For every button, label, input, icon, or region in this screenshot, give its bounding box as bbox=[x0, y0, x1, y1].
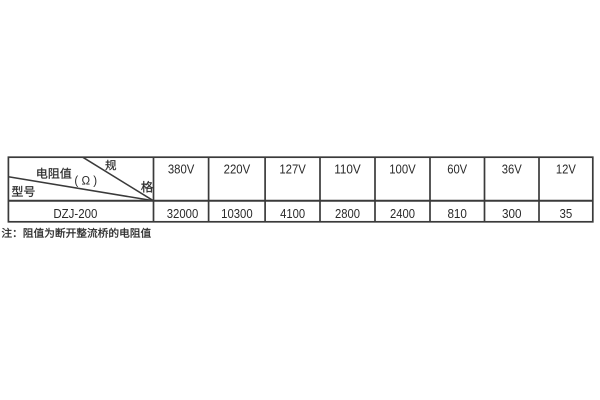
svg-text:810: 810 bbox=[447, 206, 467, 221]
svg-text:60V: 60V bbox=[447, 161, 467, 176]
svg-text:35: 35 bbox=[560, 206, 573, 221]
svg-text:300: 300 bbox=[502, 206, 522, 221]
svg-text:32000: 32000 bbox=[167, 206, 199, 221]
svg-text:10300: 10300 bbox=[221, 206, 253, 221]
svg-text:36V: 36V bbox=[502, 161, 522, 176]
svg-text:380V: 380V bbox=[168, 161, 195, 176]
svg-text:220V: 220V bbox=[224, 161, 251, 176]
svg-text:110V: 110V bbox=[334, 161, 361, 176]
svg-text:100V: 100V bbox=[389, 161, 416, 176]
svg-text:DZJ-200: DZJ-200 bbox=[53, 206, 97, 221]
svg-text:12V: 12V bbox=[556, 161, 576, 176]
svg-text:2800: 2800 bbox=[335, 206, 360, 221]
svg-text:4100: 4100 bbox=[280, 206, 305, 221]
svg-text:( Ω ): ( Ω ) bbox=[74, 175, 97, 187]
svg-text:2400: 2400 bbox=[390, 206, 415, 221]
svg-text:127V: 127V bbox=[279, 161, 306, 176]
